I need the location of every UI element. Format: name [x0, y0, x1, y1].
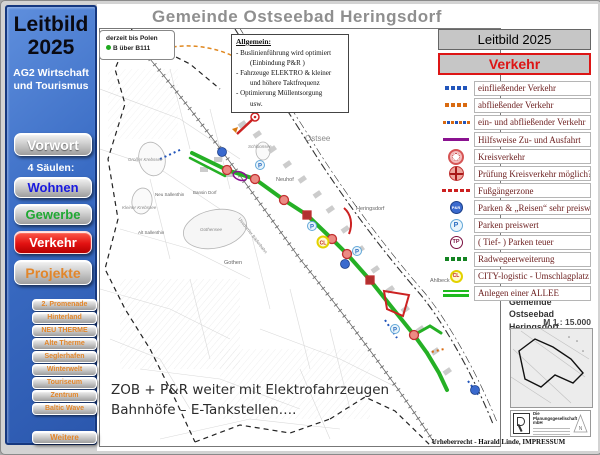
- svg-text:P: P: [258, 164, 262, 170]
- legend-label: ein- und abfließender Verkehr: [474, 115, 591, 130]
- weitere-button[interactable]: Weitere: [32, 431, 97, 444]
- allgemein-line: usw.: [236, 99, 345, 109]
- note-line2: Bahnhöfe – E-Tankstellen….: [111, 400, 411, 420]
- label-alt-sallenthin: Alt Sallenthin: [138, 230, 165, 235]
- park-and-ride-icon: P&R: [438, 201, 474, 214]
- sidebar-item-wohnen[interactable]: Wohnen: [14, 177, 92, 198]
- legend-row: Fußgängerzone: [438, 184, 591, 199]
- north-arrow-icon: N: [573, 414, 588, 433]
- svg-text:P: P: [393, 328, 397, 334]
- overview-inset-map: [510, 328, 593, 408]
- border-info-line2: B über B111: [106, 44, 172, 54]
- label-grosser-krebssee: Großer Krebssee: [128, 157, 163, 162]
- legend-row: ein- und abfließender Verkehr: [438, 115, 591, 130]
- allee-icon: [438, 290, 474, 297]
- planning-firm-box: Die Planungsgesellschaft mbH N: [510, 410, 591, 437]
- legend-label: Anlegen einer ALLEE: [474, 286, 591, 301]
- allgemein-line: - Optimierung Müllentsorgung: [236, 88, 345, 98]
- sidebar-item-zentrum[interactable]: Zentrum: [32, 390, 97, 402]
- inset-map-canvas: [511, 329, 590, 405]
- roundabout-icon: [438, 149, 474, 165]
- firm-fineprint: [533, 428, 570, 430]
- svg-text:CL: CL: [320, 241, 327, 247]
- legend-label: CITY-logistic - Umschlagplatz: [474, 269, 591, 284]
- sidebar-item-seglerhafen[interactable]: Seglerhafen: [32, 351, 97, 363]
- sidebar-title: Leitbild 2025: [7, 13, 95, 59]
- sidebar-item-baltic-wave[interactable]: Baltic Wave: [32, 403, 97, 415]
- sidebar-item-alte-therme[interactable]: Alte Therme: [32, 338, 97, 350]
- sidebar-item-gewerbe[interactable]: Gewerbe: [14, 204, 92, 225]
- sidebar-item-projekte[interactable]: Projekte: [14, 260, 92, 285]
- vorwort-button[interactable]: Vorwort: [14, 133, 92, 156]
- slide: Leitbild 2025 AG2 Wirtschaft und Tourism…: [0, 0, 600, 455]
- inflow-dots-icon: [438, 86, 474, 90]
- legend-row: CL CITY-logistic - Umschlagplatz: [438, 269, 591, 284]
- sidebar-item-touriseum[interactable]: Touriseum: [32, 377, 97, 389]
- sidebar-item-hinterland[interactable]: Hinterland: [32, 312, 97, 324]
- label-neuhof: Neuhof: [276, 177, 294, 183]
- allgemein-line: - Buslinienführung wird optimiert: [236, 48, 345, 58]
- legend-row: Anlegen einer ALLEE: [438, 286, 591, 301]
- map-scale: M 1 : 15.000: [506, 317, 591, 327]
- legend-label: Parken preiswert: [474, 218, 591, 233]
- allgemein-note: Allgemein: - Buslinienführung wird optim…: [231, 34, 349, 113]
- legend-label: Radwegeerweiterung: [474, 252, 591, 267]
- sidebar-title-line2: 2025: [7, 36, 95, 59]
- legend-title: Leitbild 2025: [438, 29, 591, 50]
- label-neu-sallenthin: Neu Sallenthin: [155, 192, 185, 197]
- bike-path-icon: [438, 257, 474, 261]
- sidebar-item-promenade[interactable]: 2. Promenade: [32, 299, 97, 311]
- pedestrian-zone-icon: [438, 189, 474, 192]
- city-logistic-icon: CL: [438, 270, 474, 283]
- parking-icon: P: [438, 219, 474, 232]
- border-info-box: derzeit bis Polen B über B111: [99, 30, 175, 60]
- legend-row: einfließender Verkehr: [438, 81, 591, 96]
- legend-label: Parken & „Reisen“ sehr preiswert: [474, 200, 591, 215]
- handwritten-note: ZOB + P&R weiter mit Elektrofahrzeugen B…: [111, 380, 411, 421]
- sidebar-item-verkehr[interactable]: Verkehr: [14, 231, 92, 254]
- allgemein-line: (Einbindung P&R ): [236, 58, 345, 68]
- sidebar-subtitle: AG2 Wirtschaft und Tourismus: [10, 67, 92, 92]
- sidebar: Leitbild 2025 AG2 Wirtschaft und Tourism…: [5, 5, 97, 445]
- svg-text:P: P: [310, 225, 314, 231]
- legend-label: Prüfung Kreisverkehr möglich?: [474, 166, 591, 181]
- allgemein-line: - Fahrzeuge ELEKTRO & kleiner: [236, 68, 345, 78]
- svg-text:P: P: [355, 250, 359, 256]
- label-bansin-dorf: Bansin Dorf: [193, 190, 217, 195]
- border-info-line1: derzeit bis Polen: [106, 34, 172, 44]
- legend-row: TP ( Tief- ) Parken teuer: [438, 235, 591, 250]
- label-gothensee: Gothensee: [200, 227, 223, 232]
- legend-rows: einfließender Verkehr abfließender Verke…: [438, 81, 591, 301]
- label-heringsdorf: Heringsdorf: [356, 206, 385, 212]
- firm-logo-icon: [513, 413, 530, 434]
- purple-line-icon: [438, 138, 474, 141]
- page-title: Gemeinde Ostseebad Heringsdorf: [101, 7, 493, 27]
- legend-row: Prüfung Kreisverkehr möglich?: [438, 166, 591, 181]
- legend-row: abfließender Verkehr: [438, 98, 591, 113]
- label-ostsee: Ostsee: [305, 134, 331, 143]
- green-dot-icon: [106, 45, 111, 50]
- svg-text:N: N: [579, 426, 583, 432]
- note-line1: ZOB + P&R weiter mit Elektrofahrzeugen: [111, 380, 411, 400]
- firm-fineprint: [533, 431, 570, 433]
- outflow-dots-icon: [438, 103, 474, 107]
- saeulen-label: 4 Säulen:: [7, 162, 95, 174]
- firm-text: Die Planungsgesellschaft mbH: [533, 412, 570, 435]
- sidebar-item-neu-therme[interactable]: NEU THERME: [32, 325, 97, 337]
- allgemein-heading: Allgemein:: [236, 37, 345, 48]
- sidebar-item-winterwelt[interactable]: Winterwelt: [32, 364, 97, 376]
- legend-row: Radwegeerweiterung: [438, 252, 591, 267]
- legend-label: Fußgängerzone: [474, 183, 591, 198]
- municipality-outline: [519, 339, 583, 387]
- legend-label: einfließender Verkehr: [474, 81, 591, 96]
- legend-label: Kreisverkehr: [474, 149, 591, 164]
- impressum-link[interactable]: Urheberrecht - Harald Linde, IMPRESSUM: [401, 438, 596, 446]
- firm-fineprint: [533, 434, 570, 436]
- legend-row: Hilfsweise Zu- und Ausfahrt: [438, 132, 591, 147]
- mixed-dots-icon: [438, 121, 474, 124]
- label-kleiner-krebssee: Kleiner Krebssee: [122, 205, 157, 210]
- allgemein-line: und höhere Taktfrequenz: [236, 78, 345, 88]
- legend-label: Hilfsweise Zu- und Ausfahrt: [474, 132, 591, 147]
- legend-row: Kreisverkehr: [438, 149, 591, 164]
- legend-subtitle: Verkehr: [438, 53, 591, 75]
- legend-label: ( Tief- ) Parken teuer: [474, 235, 591, 250]
- legend-label: abfließender Verkehr: [474, 98, 591, 113]
- firm-name: Die Planungsgesellschaft mbH: [533, 412, 570, 426]
- legend-row: P Parken preiswert: [438, 218, 591, 233]
- label-gothen: Gothen: [224, 260, 242, 266]
- legend-row: P&R Parken & „Reisen“ sehr preiswert: [438, 201, 591, 216]
- label-schloonsee: Schloonsee: [248, 144, 272, 149]
- underground-parking-icon: TP: [438, 236, 474, 249]
- legend: Leitbild 2025 Verkehr einfließender Verk…: [438, 29, 591, 301]
- sidebar-title-line1: Leitbild: [7, 13, 95, 36]
- roundabout-check-icon: [438, 166, 474, 181]
